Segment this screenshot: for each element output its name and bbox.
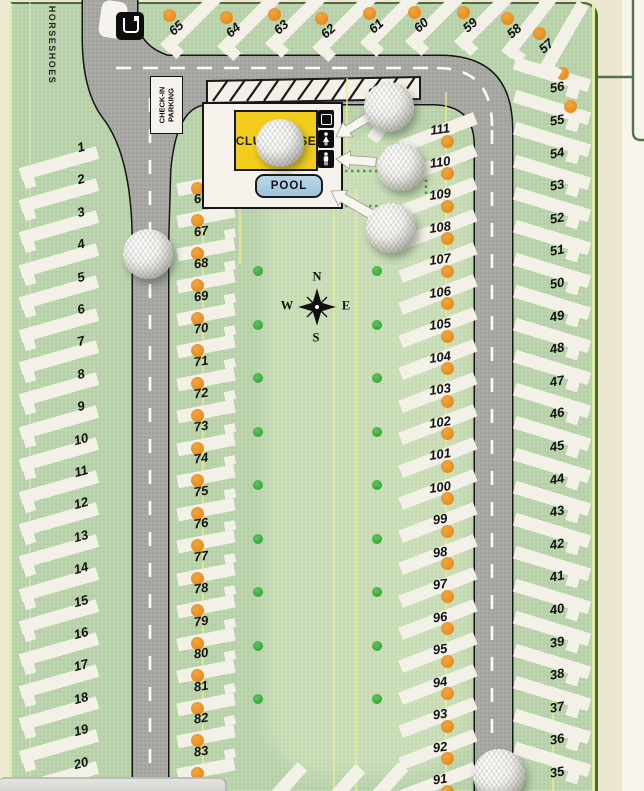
site-number: 111 [429, 120, 451, 138]
golf-ball-marker[interactable] [364, 82, 414, 132]
site-number: 48 [549, 340, 566, 357]
site-number: 38 [549, 666, 566, 683]
site-hookup-dot [441, 135, 454, 148]
tree-dot [372, 480, 382, 490]
site-number: 76 [193, 515, 209, 532]
site-number: 40 [549, 600, 566, 617]
left-frame-band [0, 0, 10, 791]
tree-dot [253, 694, 263, 704]
site-hookup-dot [441, 525, 454, 538]
check-in-line1: CHECK-IN [158, 87, 167, 124]
compass-west-label: W [281, 299, 294, 314]
site-number: 75 [193, 482, 209, 499]
campground-map-screenshot: 1234567891011121314151617181920666768697… [0, 0, 644, 791]
tree-dot [253, 641, 263, 651]
site-number: 92 [432, 738, 448, 755]
site-number: 69 [193, 287, 209, 304]
cutoff-panel [0, 777, 227, 791]
site-number: 49 [549, 307, 566, 324]
site-number: 36 [549, 731, 566, 748]
tree-dot [253, 480, 263, 490]
check-in-parking-sign: CHECK-IN PARKING [150, 76, 183, 134]
golf-ball-marker[interactable] [366, 203, 416, 253]
tree-dot [372, 427, 382, 437]
site-number: 45 [549, 437, 566, 454]
site-number: 103 [428, 380, 452, 398]
site-number: 51 [549, 242, 566, 259]
site-number: 109 [428, 185, 452, 203]
womens-restroom-icon [318, 130, 334, 148]
tree-dot [372, 534, 382, 544]
site-number: 91 [432, 771, 448, 788]
right-frame-band [600, 0, 644, 791]
site-number: 54 [549, 144, 566, 161]
site-number: 72 [193, 385, 209, 402]
tree-dot [253, 587, 263, 597]
site-number: 70 [193, 320, 209, 337]
site-number: 73 [193, 417, 209, 434]
tree-dot [253, 427, 263, 437]
site-number: 41 [549, 568, 566, 585]
site-number: 96 [432, 608, 448, 625]
site-number: 43 [549, 503, 566, 520]
tree-dot [253, 320, 263, 330]
site-hookup-dot [441, 590, 454, 603]
site-number: 94 [432, 673, 448, 690]
site-number: 52 [549, 209, 566, 226]
site-number: 37 [549, 698, 566, 715]
golf-ball-marker[interactable] [123, 229, 173, 279]
tree-dot [372, 266, 382, 276]
site-number: 108 [428, 218, 452, 236]
site-number: 93 [432, 706, 448, 723]
site-hookup-dot [441, 460, 454, 473]
tree-dot [372, 320, 382, 330]
site-number: 74 [193, 450, 209, 467]
site-hookup-dot [441, 330, 454, 343]
site-number: 55 [549, 111, 566, 128]
site-number: 101 [428, 445, 452, 463]
site-number: 71 [193, 352, 209, 369]
site-number: 98 [432, 543, 448, 560]
pool-label: POOL [271, 180, 308, 192]
tree-dot [372, 373, 382, 383]
compass-east-label: E [342, 299, 350, 314]
site-number: 102 [428, 413, 452, 431]
site-number: 83 [193, 742, 209, 759]
compass-south-label: S [313, 331, 320, 346]
tree-dot [372, 694, 382, 704]
site-hookup-dot [564, 100, 577, 113]
tree-dot [372, 641, 382, 651]
site-hookup-dot [441, 265, 454, 278]
site-number: 104 [428, 348, 452, 366]
laundry-icon [318, 110, 334, 128]
pool: POOL [255, 174, 323, 198]
tree-dot [253, 266, 263, 276]
site-number: 97 [432, 576, 448, 593]
site-hookup-dot [441, 200, 454, 213]
horseshoes-area-label: HORSESHOES [47, 6, 57, 85]
site-hookup-dot [441, 720, 454, 733]
site-number: 107 [428, 250, 452, 268]
check-in-line2: PARKING [167, 88, 176, 122]
golf-ball-marker[interactable] [256, 119, 304, 167]
site-number: 82 [193, 710, 209, 727]
site-number: 106 [428, 283, 452, 301]
site-number: 68 [193, 255, 209, 272]
golf-ball-marker[interactable] [377, 143, 425, 191]
site-number: 35 [549, 763, 566, 780]
site-number: 80 [193, 645, 209, 662]
site-number: 46 [549, 405, 566, 422]
site-number: 56 [549, 79, 566, 96]
site-number: 95 [432, 641, 448, 658]
site-hookup-dot [441, 395, 454, 408]
site-number: 67 [193, 222, 209, 239]
site-number: 99 [432, 511, 448, 528]
site-number: 100 [428, 478, 452, 496]
compass-north-label: N [312, 270, 321, 285]
site-number: 53 [549, 177, 566, 194]
site-number: 81 [193, 677, 209, 694]
dump-station-icon [116, 12, 144, 40]
tree-dot [253, 373, 263, 383]
site-number: 42 [549, 535, 566, 552]
site-number: 77 [193, 547, 209, 564]
site-hookup-dot [441, 655, 454, 668]
site-number: 50 [549, 274, 566, 291]
site-number: 78 [193, 580, 209, 597]
site-number: 105 [428, 315, 452, 333]
site-number: 79 [193, 612, 209, 629]
site-number: 44 [549, 470, 566, 487]
tree-dot [372, 587, 382, 597]
mens-restroom-icon [318, 150, 334, 168]
tree-dot [253, 534, 263, 544]
site-number: 39 [549, 633, 566, 650]
site-number: 110 [429, 153, 452, 171]
site-number: 47 [549, 372, 566, 389]
